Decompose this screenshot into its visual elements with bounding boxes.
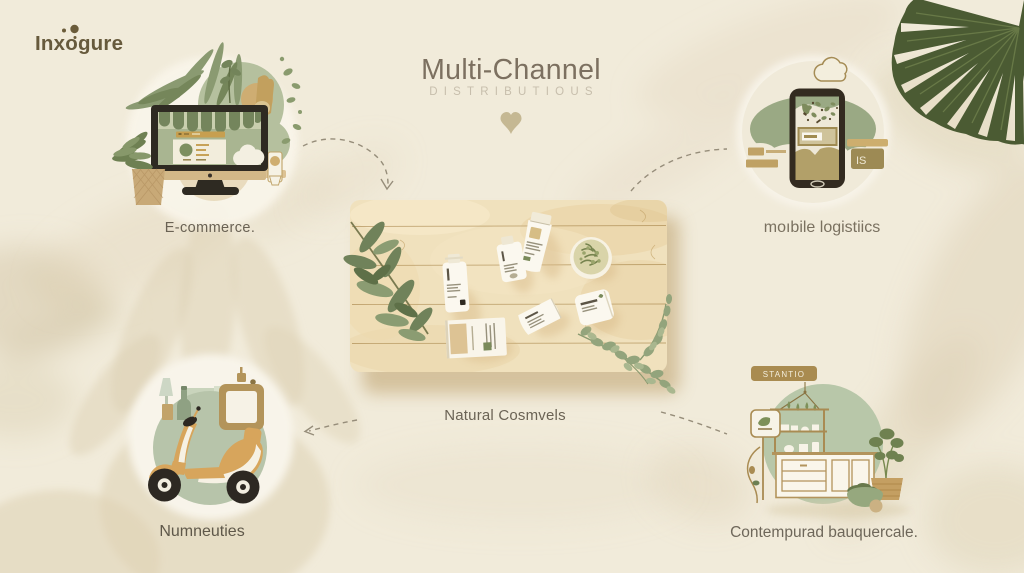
svg-text:Numneuties: Numneuties <box>159 523 244 540</box>
svg-text:moıbile logistiics: moıbile logistiics <box>764 219 880 236</box>
svg-text:IS: IS <box>856 155 866 167</box>
svg-text:Multi-Channel: Multi-Channel <box>421 54 601 86</box>
svg-text:Contempurad bauquercale.: Contempurad bauquercale. <box>730 524 918 541</box>
svg-text:STANTIO: STANTIO <box>763 370 805 379</box>
svg-text:Inxogure: Inxogure <box>35 32 123 55</box>
svg-text:DISTRIBUTIOUS: DISTRIBUTIOUS <box>429 86 598 98</box>
svg-text:Natural Cosmvels: Natural Cosmvels <box>444 407 566 424</box>
svg-text:E-commerce.: E-commerce. <box>165 220 256 236</box>
